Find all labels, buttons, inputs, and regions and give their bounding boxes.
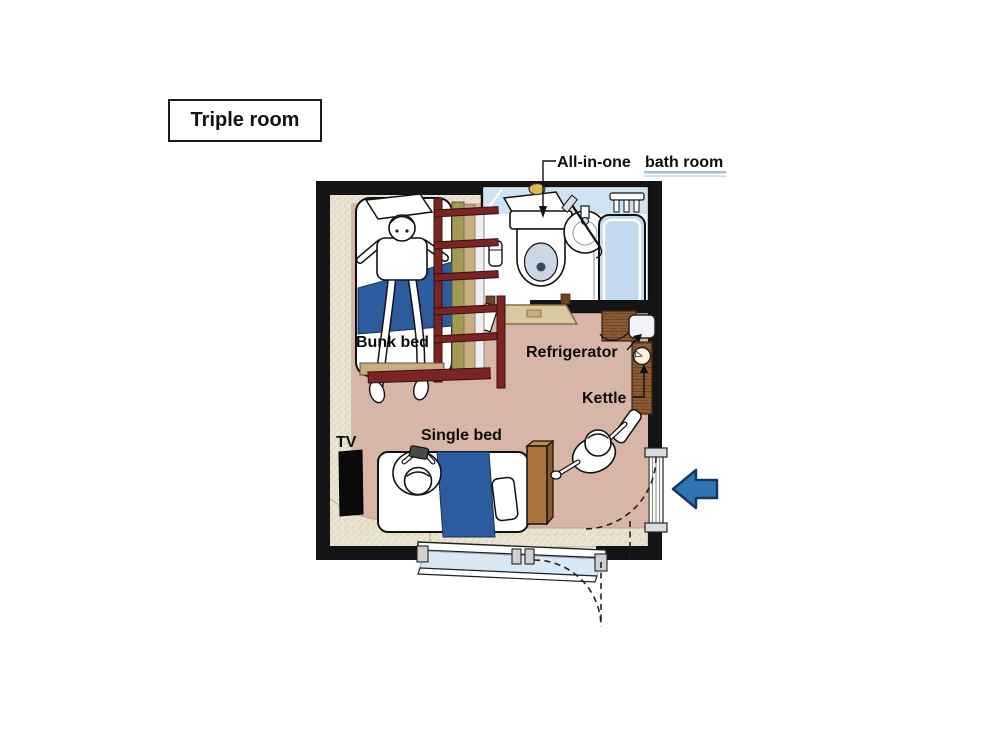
bottom-wall-left: [316, 546, 430, 560]
left-wall: [316, 181, 330, 560]
shower-bar: [610, 193, 644, 200]
faucet: [581, 206, 589, 218]
refrigerator-label: Refrigerator: [526, 344, 618, 361]
single-bed-label: Single bed: [421, 427, 502, 444]
page: Triple room: [0, 0, 1000, 750]
refrigerator: [629, 315, 655, 338]
single-blanket: [437, 452, 495, 537]
bathroom-label-underline2: [644, 176, 726, 177]
book: [409, 446, 429, 460]
tv: [339, 450, 363, 516]
tv-label: TV: [336, 434, 357, 451]
bathroom-label-underlined: bath room: [645, 154, 723, 171]
bunk-bed: [356, 194, 505, 405]
single-pillow: [492, 477, 519, 521]
bathroom-label-prefix: All-in-one: [557, 154, 631, 171]
entrance-arrow-icon: [673, 470, 717, 508]
bunk-bed-label: Bunk bed: [356, 334, 429, 351]
headboard: [527, 446, 547, 524]
bathroom-label-underline: [644, 171, 726, 174]
kettle-label: Kettle: [582, 390, 627, 407]
floor-plan: All-in-one bath room Bunk bed TV Single …: [0, 0, 1000, 750]
single-bed: [378, 441, 553, 537]
window: [417, 542, 607, 582]
